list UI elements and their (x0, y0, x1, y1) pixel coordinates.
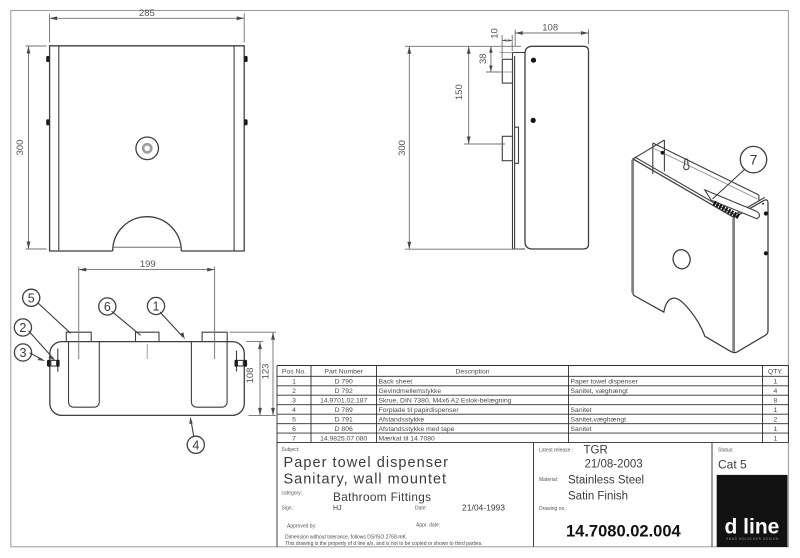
svg-text:38: 38 (478, 53, 489, 64)
svg-text:QTY.: QTY. (768, 368, 783, 375)
svg-text:D 791: D 791 (335, 416, 353, 423)
svg-text:Afstandsstykke med tape: Afstandsstykke med tape (379, 426, 455, 433)
svg-text:285: 285 (139, 8, 155, 19)
svg-text:D 789: D 789 (335, 407, 353, 414)
svg-text:4: 4 (774, 388, 778, 395)
svg-text:1: 1 (774, 378, 778, 385)
svg-text:Afstandsstykke: Afstandsstykke (379, 416, 425, 423)
svg-text:Status:: Status: (718, 448, 734, 454)
svg-text:21/08-2003: 21/08-2003 (585, 459, 643, 471)
svg-text:6: 6 (104, 300, 111, 314)
svg-text:150: 150 (454, 84, 465, 100)
svg-text:Material:: Material: (539, 477, 558, 483)
svg-text:D 790: D 790 (335, 378, 353, 385)
svg-text:4: 4 (292, 407, 296, 414)
svg-text:Forplade til papirdispenser: Forplade til papirdispenser (379, 407, 460, 414)
svg-text:7: 7 (292, 435, 296, 442)
svg-text:TGR: TGR (584, 445, 608, 457)
svg-text:1: 1 (292, 378, 296, 385)
svg-text:8: 8 (774, 397, 778, 404)
svg-text:1: 1 (774, 426, 778, 433)
svg-text:Bathroom Fittings: Bathroom Fittings (333, 490, 431, 504)
svg-text:Pos No.: Pos No. (282, 368, 306, 375)
svg-text:3: 3 (20, 346, 27, 360)
svg-text:Sanitet: Sanitet (571, 407, 592, 414)
svg-text:Sanitet, væghængt: Sanitet, væghængt (571, 388, 629, 395)
svg-text:category:: category: (282, 491, 303, 497)
svg-text:D 806: D 806 (335, 426, 353, 433)
svg-text:14.9701.02.187: 14.9701.02.187 (320, 397, 367, 404)
svg-text:Sanitet,væghængt: Sanitet,væghængt (571, 416, 627, 423)
svg-text:Latest release :: Latest release : (539, 448, 573, 454)
svg-text:6: 6 (292, 426, 296, 433)
svg-text:21/04-1993: 21/04-1993 (462, 503, 505, 513)
svg-text:2: 2 (292, 388, 296, 395)
svg-text:Part Number: Part Number (324, 368, 363, 375)
svg-text:14.9825.07.080: 14.9825.07.080 (320, 435, 367, 442)
svg-text:300: 300 (15, 140, 26, 156)
svg-text:Sign.:: Sign.: (282, 506, 295, 512)
svg-text:Approved by:: Approved by: (287, 524, 316, 530)
svg-text:14.7080.02.004: 14.7080.02.004 (566, 523, 682, 541)
svg-text:Back sheet: Back sheet (379, 378, 413, 385)
svg-text:10: 10 (490, 28, 501, 39)
svg-text:Dimension without tolerance, f: Dimension without tolerance, follows DS/… (285, 535, 407, 541)
svg-text:4: 4 (192, 438, 199, 452)
svg-text:300: 300 (397, 140, 408, 156)
svg-text:Appr. date:: Appr. date: (416, 523, 440, 529)
svg-text:7: 7 (750, 152, 758, 168)
svg-text:Cat 5: Cat 5 (718, 458, 747, 472)
svg-text:Paper towel dispenser: Paper towel dispenser (284, 455, 450, 471)
svg-text:Satin Finish: Satin Finish (568, 491, 628, 503)
svg-text:5: 5 (292, 416, 296, 423)
svg-text:108: 108 (542, 23, 558, 34)
svg-text:Stainless Steel: Stainless Steel (568, 475, 644, 487)
svg-text:1: 1 (774, 407, 778, 414)
svg-text:Subject:: Subject: (282, 447, 300, 453)
svg-text:Gevindmellemstykke: Gevindmellemstykke (379, 388, 442, 395)
svg-text:2: 2 (19, 321, 26, 335)
svg-text:Sanitet: Sanitet (571, 426, 592, 433)
svg-text:123: 123 (261, 364, 272, 380)
svg-text:D 792: D 792 (335, 388, 353, 395)
svg-text:HJ: HJ (333, 505, 342, 512)
svg-text:199: 199 (140, 259, 156, 270)
svg-text:Description: Description (456, 368, 490, 375)
svg-text:108: 108 (245, 368, 256, 384)
svg-text:Sanitary, wall mountet: Sanitary, wall mountet (284, 472, 448, 488)
svg-text:2: 2 (774, 416, 778, 423)
svg-text:Mærkat til 14.7080: Mærkat til 14.7080 (379, 435, 436, 442)
svg-text:1: 1 (153, 300, 160, 314)
svg-text:d line: d line (725, 516, 780, 539)
svg-text:Skrue, DIN 7380, M4x6 A2 Eslo: Skrue, DIN 7380, M4x6 A2 Eslok-belægning (379, 397, 512, 404)
svg-text:This drawing is the property o: This drawing is the property of d line a… (285, 541, 483, 547)
svg-text:Paper towel dispenser: Paper towel dispenser (571, 378, 639, 385)
svg-text:KNUD HOLSCHER DESIGN: KNUD HOLSCHER DESIGN (726, 537, 779, 541)
svg-text:Date:: Date: (415, 506, 427, 512)
svg-text:1: 1 (774, 435, 778, 442)
svg-text:3: 3 (292, 397, 296, 404)
svg-text:Drawing no.:: Drawing no.: (539, 506, 567, 512)
svg-text:5: 5 (28, 291, 35, 305)
